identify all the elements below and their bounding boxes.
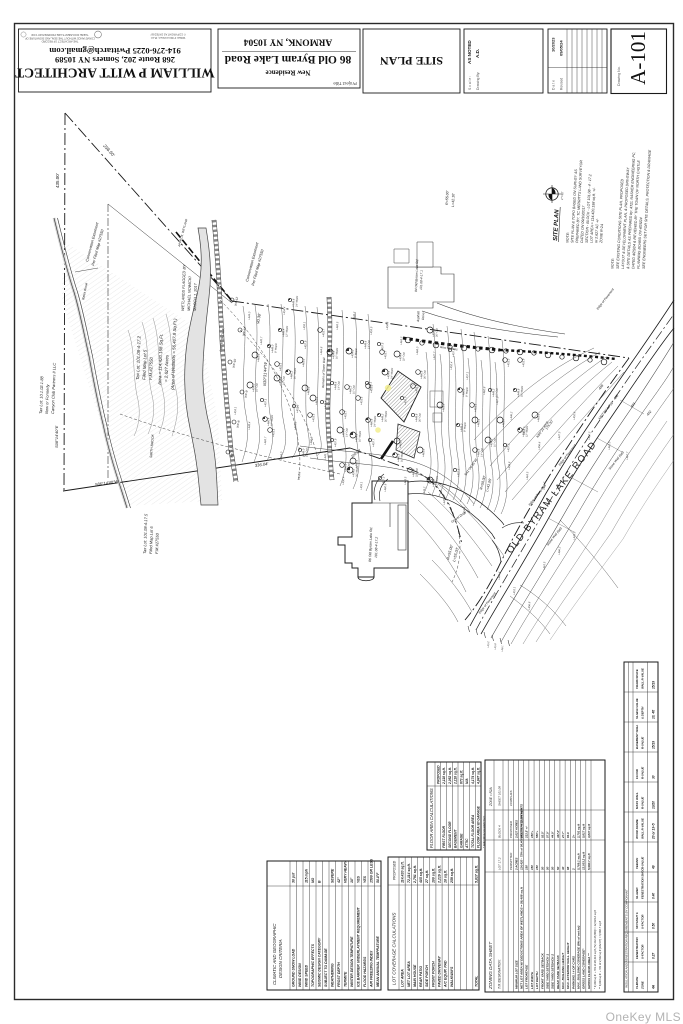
svg-text:+445.7: +445.7: [323, 451, 327, 460]
svg-text:+45.2: +45.2: [486, 641, 490, 648]
svg-text:+456.6: +456.6: [537, 441, 541, 450]
svg-text:+469.7: +469.7: [263, 436, 267, 445]
svg-text:MAX. BUILDING COVERAGE (8% of: MAX. BUILDING COVERAGE (8% of net lot): [577, 926, 581, 989]
svg-text:673 sq.ft.: 673 sq.ft.: [459, 770, 463, 784]
svg-text:18 sq.ft.: 18 sq.ft.: [444, 870, 448, 883]
svg-text:18" Oak: 18" Oak: [255, 382, 258, 392]
svg-text:A-101: A-101: [626, 31, 650, 85]
svg-text:WALL R-VALUE: WALL R-VALUE: [641, 818, 645, 839]
svg-text:FLOOD HAZARDS: FLOOD HAZARDS: [363, 956, 367, 987]
svg-text:12,933.2 sq.ft: 12,933.2 sq.ft: [582, 851, 586, 870]
svg-text:FENESTRATION SHGC: FENESTRATION SHGC: [641, 868, 645, 899]
svg-text:+454.6: +454.6: [462, 506, 466, 515]
svg-text:+452.4: +452.4: [449, 361, 453, 370]
svg-text:Drawing No.: Drawing No.: [617, 66, 621, 86]
svg-text:101.08-4-17.2: 101.08-4-17.2: [374, 537, 379, 558]
svg-text:+463.1: +463.1: [476, 418, 480, 427]
svg-text:+45.8: +45.8: [493, 643, 497, 650]
svg-text:0.50: 0.50: [652, 923, 656, 929]
svg-text:30: 30: [561, 866, 565, 870]
svg-text:S c a l e :: S c a l e :: [468, 76, 472, 90]
svg-text:WIND DESIGN: WIND DESIGN: [298, 963, 302, 987]
svg-text:115 mph: 115 mph: [305, 869, 309, 883]
svg-text:N30°31'44"W: N30°31'44"W: [262, 361, 268, 386]
svg-text:+453.1: +453.1: [233, 406, 237, 415]
svg-text:12" Maple: 12" Maple: [285, 325, 288, 337]
svg-text:+465.5: +465.5: [403, 476, 407, 485]
svg-text:2,118 sq.ft.: 2,118 sq.ft.: [442, 767, 446, 785]
svg-text:+451.7: +451.7: [383, 350, 387, 359]
svg-text:U-FACTOR: U-FACTOR: [641, 945, 645, 959]
svg-text:24" Maple: 24" Maple: [295, 295, 298, 308]
svg-text:LOT AREA: LOT AREA: [401, 969, 405, 987]
svg-text:SEISMIC DESIGN CATEGORY: SEISMIC DESIGN CATEGORY: [318, 937, 322, 987]
svg-text:101.08-4-17.1: 101.08-4-17.1: [419, 270, 424, 290]
svg-text:4,847 sq.ft: 4,847 sq.ft: [587, 823, 591, 839]
svg-text:5,960.7 sq.ft: 5,960.7 sq.ft: [587, 852, 591, 870]
svg-text:DESIGN CRITERIA: DESIGN CRITERIA: [278, 939, 283, 978]
svg-text:435.00': 435.00': [55, 173, 60, 188]
svg-text:A.D.: A.D.: [475, 49, 480, 58]
svg-text:FLOOR: FLOOR: [635, 769, 639, 779]
svg-text:+451.5: +451.5: [359, 396, 363, 405]
svg-text:+463.3: +463.3: [399, 336, 403, 345]
svg-text:Project Title: Project Title: [333, 81, 357, 86]
svg-text:TOPOGRAPHIC EFFECTS: TOPOGRAPHIC EFFECTS: [311, 943, 315, 987]
svg-text:U-FACTOR: U-FACTOR: [641, 915, 645, 929]
svg-text:+451.1: +451.1: [512, 586, 516, 595]
svg-text:+456.8: +456.8: [527, 601, 531, 610]
svg-text:150'+: 150'+: [530, 830, 534, 838]
svg-text:GARAGE: GARAGE: [459, 833, 463, 848]
svg-text:18" Oak: 18" Oak: [305, 447, 308, 457]
svg-text:150: 150: [530, 865, 534, 870]
svg-text:+463.7: +463.7: [398, 439, 402, 448]
svg-text:+464.8: +464.8: [319, 346, 323, 355]
svg-text:20" Maple: 20" Maple: [384, 410, 387, 423]
svg-text:+461.5: +461.5: [542, 561, 546, 570]
svg-text:LOT 17.2: LOT 17.2: [498, 857, 502, 870]
svg-text:LOT FRONTAGE: LOT FRONTAGE: [525, 964, 529, 989]
svg-text:16" Maple: 16" Maple: [520, 385, 523, 397]
svg-text:20" Maple: 20" Maple: [355, 465, 358, 478]
svg-text:PROPOSED: PROPOSED: [393, 860, 397, 880]
svg-text:INSULATION AND FENESTRATION RE: INSULATION AND FENESTRATION REQUIREMENTS…: [625, 888, 629, 988]
svg-text:+463.5: +463.5: [256, 353, 260, 362]
svg-text:15/19: 15/19: [652, 741, 656, 749]
svg-text:+464.0: +464.0: [279, 451, 283, 460]
svg-text:13/20: 13/20: [652, 801, 656, 809]
svg-text:CRAWLSPACE: CRAWLSPACE: [635, 669, 639, 689]
svg-text:WALKWAYS: WALKWAYS: [450, 966, 454, 987]
svg-text:88: 88: [566, 866, 570, 870]
svg-text:+463.5: +463.5: [314, 396, 318, 405]
svg-text:+463.3: +463.3: [301, 358, 305, 367]
svg-text:8" Maple: 8" Maple: [465, 387, 468, 397]
svg-text:* 9,330 sq.ft. + 5% of 26,314: * 9,330 sq.ft. + 5% of 26,314 sq.ft (72,…: [593, 910, 597, 989]
svg-text:+461.3: +461.3: [293, 421, 297, 430]
svg-text:GROSS FLOOR AREA **: GROSS FLOOR AREA **: [587, 953, 591, 989]
svg-text:TERMITE: TERMITE: [344, 971, 348, 987]
svg-text:57.9': 57.9': [545, 831, 549, 838]
svg-text:150: 150: [525, 865, 529, 870]
svg-text:+457.9: +457.9: [333, 438, 337, 447]
svg-text:LOT COVERAGE CALCULATIONS: LOT COVERAGE CALCULATIONS: [392, 912, 397, 985]
svg-text:+451.9: +451.9: [521, 358, 525, 367]
svg-text:MEETS REQUIREMENTS: MEETS REQUIREMENTS: [520, 804, 524, 838]
svg-text:VERY HEAVY: VERY HEAVY: [344, 860, 348, 883]
svg-text:10" Oak: 10" Oak: [282, 375, 285, 385]
svg-text:WALL R-VALUE: WALL R-VALUE: [641, 668, 645, 689]
svg-text:10" Oak: 10" Oak: [493, 437, 496, 447]
svg-text:+451.7: +451.7: [343, 410, 347, 419]
svg-text:405 sq.ft.: 405 sq.ft.: [419, 868, 423, 884]
svg-text:PARKING / # OF CARS: PARKING / # OF CARS: [571, 955, 575, 989]
svg-text:49: 49: [652, 865, 656, 870]
svg-text:10, 4ft: 10, 4ft: [652, 709, 656, 719]
svg-text:2+: 2+: [571, 834, 575, 839]
svg-text:+463.9: +463.9: [441, 403, 445, 412]
svg-text:10" Oak: 10" Oak: [352, 384, 355, 394]
svg-text:MAX. EXTERIOR WALL HEIGHT: MAX. EXTERIOR WALL HEIGHT: [566, 941, 570, 989]
svg-text:+452.6: +452.6: [572, 411, 576, 420]
svg-text:ATTIC: ATTIC: [465, 838, 469, 849]
svg-text:+457.1: +457.1: [263, 398, 267, 407]
svg-text:+46.1: +46.1: [500, 645, 504, 652]
svg-text:22" Oak: 22" Oak: [402, 351, 405, 362]
svg-text:+469.5: +469.5: [335, 321, 339, 330]
svg-text:+446.4: +446.4: [497, 571, 501, 580]
svg-text:+444.2: +444.2: [422, 486, 426, 495]
svg-text:+463.3: +463.3: [306, 386, 310, 395]
svg-text:50.0°F: 50.0°F: [376, 872, 380, 883]
svg-text:+463.9: +463.9: [421, 448, 425, 457]
svg-text:+451.9: +451.9: [522, 426, 526, 435]
svg-text:YES: YES: [363, 875, 367, 883]
svg-text:26" Oak: 26" Oak: [435, 327, 438, 338]
svg-text:TOTAL: TOTAL: [474, 976, 478, 987]
svg-text:T.M./DESIGNATION:: T.M./DESIGNATION:: [498, 959, 502, 989]
svg-text:BASEMENT WALL: BASEMENT WALL: [635, 724, 639, 749]
svg-text:N/A: N/A: [465, 778, 469, 784]
svg-text:BLOCK 4: BLOCK 4: [498, 825, 502, 838]
svg-text:+451.9: +451.9: [414, 384, 418, 393]
svg-text:THE ARCHITECT OF RECORD: THE ARCHITECT OF RECORD: [41, 39, 78, 43]
svg-text:22" Oak: 22" Oak: [327, 399, 330, 410]
svg-text:FLOOR AREA W/ GARAGE: FLOOR AREA W/ GARAGE: [477, 805, 481, 848]
svg-text:+466.2: +466.2: [557, 546, 561, 555]
svg-text:27 sq.ft.: 27 sq.ft.: [425, 870, 429, 884]
svg-text:4,847 sq.ft.: 4,847 sq.ft.: [477, 767, 481, 785]
svg-text:0.40: 0.40: [652, 893, 656, 899]
svg-text:+463.7: +463.7: [501, 418, 505, 427]
svg-text:20 or 13+5: 20 or 13+5: [652, 823, 656, 840]
svg-text:2,791 sq.ft.: 2,791 sq.ft.: [413, 865, 417, 884]
svg-text:L=42.10': L=42.10': [451, 193, 455, 207]
svg-text:84.9: 84.9: [566, 832, 570, 838]
svg-text:30 psf: 30 psf: [292, 872, 296, 883]
svg-text:2,052 sq.ft.: 2,052 sq.ft.: [448, 767, 452, 785]
svg-text:+457.7: +457.7: [371, 438, 375, 447]
svg-text:+462.8: +462.8: [482, 386, 486, 395]
svg-text:MEAN ANNUAL TEMPRATURE: MEAN ANNUAL TEMPRATURE: [376, 935, 380, 987]
svg-text:FROST DEPTH: FROST DEPTH: [337, 962, 341, 987]
svg-text:SUBJECT TO DAMAGE: SUBJECT TO DAMAGE: [324, 948, 328, 987]
svg-text:2,219 sq.ft.: 2,219 sq.ft.: [438, 865, 442, 884]
svg-text:4A: 4A: [652, 984, 656, 990]
svg-text:+457.7: +457.7: [403, 396, 407, 405]
svg-text:2: 2: [571, 868, 575, 871]
svg-text:26" Oak: 26" Oak: [418, 412, 421, 423]
svg-text:42": 42": [337, 877, 341, 884]
svg-text:R=55.00': R=55.00': [445, 190, 450, 205]
svg-text:= 2.627 Acres: = 2.627 Acres: [164, 354, 170, 382]
svg-text:LOT WIDTH: LOT WIDTH: [530, 971, 534, 989]
svg-text:+466.0: +466.0: [309, 436, 313, 445]
svg-text:150: 150: [535, 865, 539, 870]
svg-text:2,118 sq.ft.: 2,118 sq.ft.: [454, 767, 458, 785]
svg-text:MASS WALL: MASS WALL: [635, 792, 639, 809]
svg-text:+468.2: +468.2: [542, 481, 546, 490]
svg-text:WILLIAM P WITT ARCHITECT: WILLIAM P WITT ARCHITECT: [15, 65, 214, 80]
svg-text:+448.2: +448.2: [352, 311, 356, 320]
svg-text:1"=30': 1"=30': [560, 191, 564, 200]
svg-text:+457.5: +457.5: [456, 468, 460, 477]
svg-text:+463.5: +463.5: [536, 413, 540, 422]
svg-text:+457.9: +457.9: [303, 340, 307, 349]
svg-text:NET LOT AREA W/ DEDUCTIONS AR: NET LOT AREA W/ DEDUCTIONS AREA OF WETLA…: [520, 886, 524, 989]
svg-text:8" Maple: 8" Maple: [354, 348, 357, 358]
svg-text:SEVERE: SEVERE: [331, 868, 335, 883]
svg-text:NET LOT AREA: NET LOT AREA: [407, 961, 411, 987]
svg-text:+467.7: +467.7: [625, 451, 629, 460]
svg-text:Now or Formerly: Now or Formerly: [44, 383, 50, 414]
svg-text:SITE PLAN: SITE PLAN: [380, 54, 443, 68]
svg-text:+457.3: +457.3: [587, 431, 591, 440]
svg-text:+462.0: +462.0: [607, 441, 611, 450]
svg-text:+457.1: +457.1: [368, 381, 372, 390]
svg-text:10/2023: 10/2023: [551, 37, 556, 52]
svg-text:R-VALUE: R-VALUE: [641, 767, 645, 779]
svg-text:+467.5: +467.5: [495, 396, 499, 405]
svg-text:16" Maple: 16" Maple: [335, 347, 338, 359]
svg-text:12" Maple: 12" Maple: [270, 414, 273, 426]
svg-text:12" Maple: 12" Maple: [435, 475, 438, 487]
svg-text:+451.1: +451.1: [278, 362, 282, 371]
svg-text:Revised: Revised: [560, 78, 564, 90]
svg-text:GROUND SNOW LOAD: GROUND SNOW LOAD: [292, 948, 296, 987]
svg-text:SIDE YARD SETBACK-1: SIDE YARD SETBACK-1: [545, 954, 549, 989]
svg-text:** 6,034 sq.ft. + 5% of 2,534: ** 6,034 sq.ft. + 5% of 2,534 sq.ft (102…: [598, 921, 602, 989]
svg-text:+444.0: +444.0: [247, 311, 251, 320]
svg-text:F.M.#27550: F.M.#27550: [148, 356, 154, 380]
svg-text:FIRST FLOOR: FIRST FLOOR: [442, 825, 446, 848]
svg-text:FENESTRATION: FENESTRATION: [635, 936, 639, 959]
svg-text:+458.6: +458.6: [385, 321, 389, 330]
svg-text:50: 50: [551, 866, 555, 870]
svg-text:CEILING: CEILING: [635, 857, 639, 869]
svg-text:5,817 sq.ft: 5,817 sq.ft: [582, 823, 586, 838]
svg-text:NOTE:: NOTE:: [611, 258, 616, 269]
svg-text:09/05/24: 09/05/24: [559, 40, 564, 56]
svg-text:14" Oak: 14" Oak: [337, 380, 340, 390]
svg-text:24" Maple: 24" Maple: [390, 367, 393, 380]
svg-text:Drive: Drive: [421, 312, 425, 320]
svg-text:ZONE: ZONE: [641, 981, 645, 990]
svg-text:R-VALUE: R-VALUE: [641, 737, 645, 749]
svg-text:+468.0: +468.0: [415, 346, 419, 355]
svg-text:+451.5: +451.5: [311, 413, 315, 422]
svg-text:+455.1: +455.1: [359, 481, 363, 490]
svg-text:YES: YES: [357, 875, 361, 883]
svg-text:BASEMENT: BASEMENT: [454, 829, 458, 848]
svg-text:4,174 sq.ft.: 4,174 sq.ft.: [471, 767, 475, 785]
svg-text:A/C EQUIP. PAD: A/C EQUIP. PAD: [444, 960, 448, 988]
svg-text:MINIMUM LOT SIZE: MINIMUM LOT SIZE: [514, 959, 518, 989]
svg-text:OneKey MLS: OneKey MLS: [606, 1010, 681, 1024]
svg-text:+451.7: +451.7: [321, 328, 325, 337]
svg-text:LOT DEPTH: LOT DEPTH: [535, 971, 539, 989]
svg-text:GROSS LAND COVERAGE*: GROSS LAND COVERAGE*: [582, 948, 586, 989]
svg-text:COMPLIES: COMPLIES: [509, 790, 513, 806]
svg-text:FRONT PORCH: FRONT PORCH: [431, 961, 435, 987]
svg-text:0.27: 0.27: [652, 953, 656, 959]
svg-text:+458.8: +458.8: [507, 461, 511, 470]
svg-text:REAR YARD SETBACK: REAR YARD SETBACK: [556, 954, 560, 989]
svg-text:& DEPTH: & DEPTH: [641, 706, 645, 719]
svg-text:SIDE YARD SETBACK-2: SIDE YARD SETBACK-2: [551, 954, 555, 989]
svg-text:+451.3: +451.3: [506, 358, 510, 367]
svg-text:PROPOSED: PROPOSED: [509, 820, 513, 838]
svg-text:212.5' +/-: 212.5' +/-: [525, 826, 529, 839]
svg-text:+457.3: +457.3: [295, 404, 299, 413]
svg-text:MAX. BUILDING HEIGHT: MAX. BUILDING HEIGHT: [561, 952, 565, 989]
svg-text:10°: 10°: [350, 877, 354, 883]
svg-text:10" Oak: 10" Oak: [495, 387, 498, 397]
svg-text:347.0': 347.0': [556, 830, 560, 838]
svg-text:50: 50: [556, 866, 560, 870]
svg-text:SKYLIGHT b: SKYLIGHT b: [635, 912, 639, 929]
svg-text:550'+: 550'+: [535, 830, 539, 838]
svg-text:SIDE PORCH: SIDE PORCH: [425, 965, 429, 987]
svg-text:William P Witt Architect, PLLC: William P Witt Architect, PLLC: [151, 36, 186, 40]
svg-text:+451.1: +451.1: [473, 403, 477, 412]
svg-text:5,769.1 sq.ft: 5,769.1 sq.ft: [577, 852, 581, 870]
svg-text:14" Oak: 14" Oak: [480, 447, 483, 457]
svg-text:NOTE:: NOTE:: [566, 232, 571, 243]
svg-text:+454.4: +454.4: [282, 306, 286, 315]
svg-text:100 sq.ft.: 100 sq.ft.: [431, 868, 435, 883]
svg-text:16" Maple: 16" Maple: [358, 430, 361, 442]
svg-text:SLAB R-VALUE: SLAB R-VALUE: [635, 698, 639, 719]
svg-text:ARMONK, NY 10504: ARMONK, NY 10504: [243, 37, 332, 47]
svg-text:+450.4: +450.4: [341, 476, 345, 485]
svg-text:WOOD FRAME: WOOD FRAME: [635, 819, 639, 839]
svg-text:R-VALUE: R-VALUE: [641, 857, 645, 869]
svg-text:+449.7: +449.7: [259, 336, 263, 345]
svg-text:1500 OR LESS: 1500 OR LESS: [370, 858, 374, 883]
svg-text:+457.9: +457.9: [451, 348, 455, 357]
svg-text:SECOND FLOOR: SECOND FLOOR: [448, 821, 452, 848]
svg-text:TOTAL FLOOR AREA: TOTAL FLOOR AREA: [471, 814, 475, 848]
svg-text:8" Maple: 8" Maple: [274, 343, 277, 353]
svg-text:Asphalt: Asphalt: [416, 311, 420, 323]
svg-text:44.9': 44.9': [551, 831, 555, 839]
svg-text:WEATHERING: WEATHERING: [331, 963, 335, 987]
svg-text:S08°14'40"E: S08°14'40"E: [54, 425, 59, 448]
svg-text:Filed Map Lot 6: Filed Map Lot 6: [148, 526, 154, 555]
svg-text:15/19: 15/19: [652, 681, 656, 689]
svg-text:14" Oak: 14" Oak: [367, 339, 370, 349]
svg-text:22" Oak: 22" Oak: [415, 467, 418, 478]
svg-text:+447.7: +447.7: [432, 351, 436, 360]
svg-text:+447.9: +447.9: [557, 431, 561, 440]
svg-text:+449.9: +449.9: [442, 496, 446, 505]
svg-text:5,817 sq.ft.: 5,817 sq.ft.: [474, 865, 478, 883]
svg-text:+463.5: +463.5: [525, 471, 529, 480]
svg-text:PROPOSED: PROPOSED: [436, 765, 440, 784]
svg-text:14" Oak: 14" Oak: [345, 427, 348, 437]
svg-text:+457.3: +457.3: [506, 443, 510, 452]
svg-text:AS NOTED: AS NOTED: [467, 40, 472, 64]
svg-text:8" Maple: 8" Maple: [463, 422, 466, 432]
svg-text:+459.3: +459.3: [297, 471, 301, 480]
svg-text:+459.1: +459.1: [302, 321, 306, 330]
svg-text:WINTER DESIGN TEMPATURE: WINTER DESIGN TEMPATURE: [350, 936, 354, 987]
svg-text:50: 50: [545, 866, 549, 870]
svg-text:26" Oak: 26" Oak: [423, 369, 426, 380]
svg-text:259 sq.ft.: 259 sq.ft.: [450, 868, 454, 884]
svg-text:+445.9: +445.9: [572, 531, 576, 540]
svg-text:CLIMATE: CLIMATE: [635, 977, 639, 989]
svg-text:2.627 ACRES: 2.627 ACRES: [514, 820, 518, 839]
svg-text:+446.2: +446.2: [509, 411, 513, 420]
svg-text:F.M.#27550: F.M.#27550: [154, 532, 160, 554]
svg-text:ZONE = R2A: ZONE = R2A: [489, 787, 493, 807]
svg-text:FLOOR AREA CALCULATIONS: FLOOR AREA CALCULATIONS: [429, 788, 434, 848]
svg-text:+448.4: +448.4: [247, 421, 251, 430]
svg-text:FRONT YARD SETBACK: FRONT YARD SETBACK: [540, 952, 544, 989]
svg-text:2 ACRES: 2 ACRES: [514, 858, 518, 871]
svg-text:ICE BARRIER UNDERLAYMENT REQUI: ICE BARRIER UNDERLAYMENT REQUIREMENT: [357, 906, 361, 987]
svg-text:REAR PATIO: REAR PATIO: [419, 966, 423, 987]
svg-text:+460.8: +460.8: [383, 483, 387, 492]
svg-text:914-276-0225 Pwittarch@gmail.c: 914-276-0225 Pwittarch@gmail.com: [49, 46, 180, 56]
svg-text:+457.1: +457.1: [465, 371, 469, 380]
svg-text:50: 50: [540, 866, 544, 870]
svg-text:20" Maple: 20" Maple: [293, 367, 296, 380]
svg-text:72,114 sq.ft.: 72,114 sq.ft.: [407, 863, 411, 883]
svg-text:30: 30: [652, 775, 656, 779]
svg-text:AIR FREEZING INDEX: AIR FREEZING INDEX: [370, 950, 374, 988]
svg-text:2,791 sq.ft: 2,791 sq.ft: [577, 823, 581, 839]
svg-text:+451.1: +451.1: [271, 428, 275, 437]
svg-text:86 Old Byram Lake Road: 86 Old Byram Lake Road: [224, 53, 351, 65]
svg-text:D a t e: D a t e: [552, 80, 556, 90]
svg-text:ZONING DATA SHEET: ZONING DATA SHEET: [488, 941, 493, 990]
svg-text:MAIN HOUSE: MAIN HOUSE: [413, 964, 417, 987]
svg-text:R-VALUE: R-VALUE: [641, 797, 645, 809]
svg-text:CLIMATIC AND GEOGRAPHIC: CLIMATIC AND GEOGRAPHIC: [272, 923, 277, 985]
svg-text:GLAZED: GLAZED: [635, 888, 639, 900]
svg-text:+453.9: +453.9: [369, 326, 373, 335]
svg-text:PAVED DRIVEWAY: PAVED DRIVEWAY: [438, 955, 442, 987]
svg-text:114,420 sq.ft.: 114,420 sq.ft.: [401, 861, 405, 883]
svg-text:New Residence: New Residence: [266, 69, 311, 77]
svg-text:92.5': 92.5': [540, 831, 544, 838]
svg-text:27.7': 27.7': [561, 831, 565, 839]
svg-text:PERMITTED: PERMITTED: [509, 852, 513, 870]
